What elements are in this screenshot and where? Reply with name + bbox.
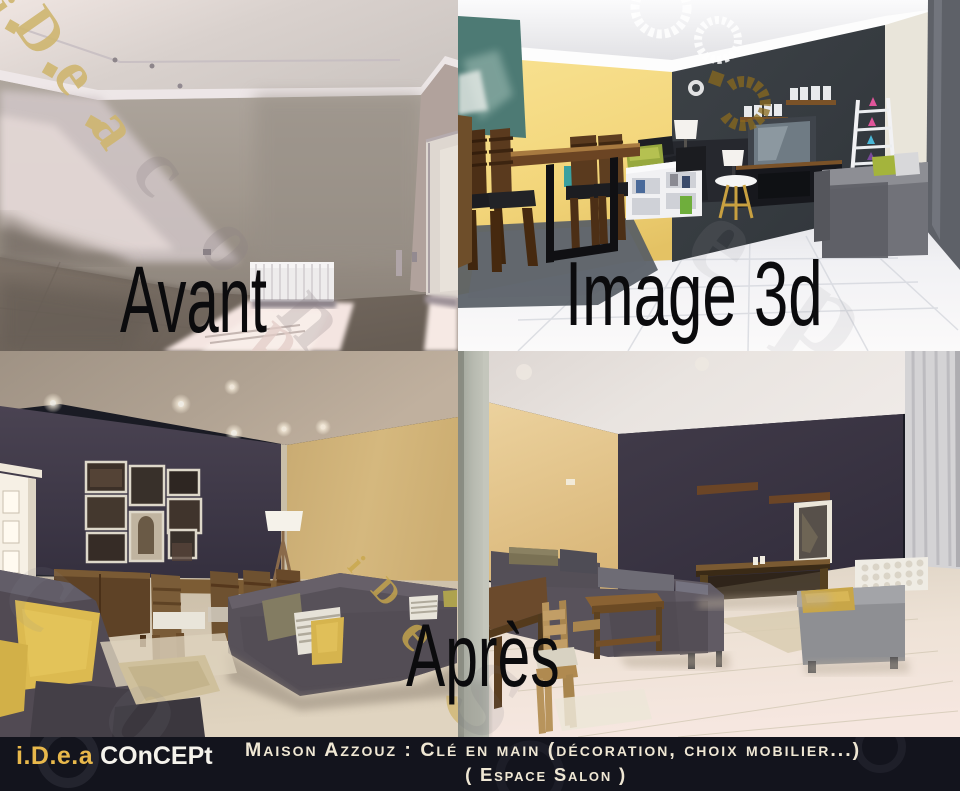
svg-text:Après: Après bbox=[406, 606, 560, 706]
svg-text:Avant: Avant bbox=[120, 247, 267, 351]
svg-text:Image 3d: Image 3d bbox=[565, 243, 823, 344]
